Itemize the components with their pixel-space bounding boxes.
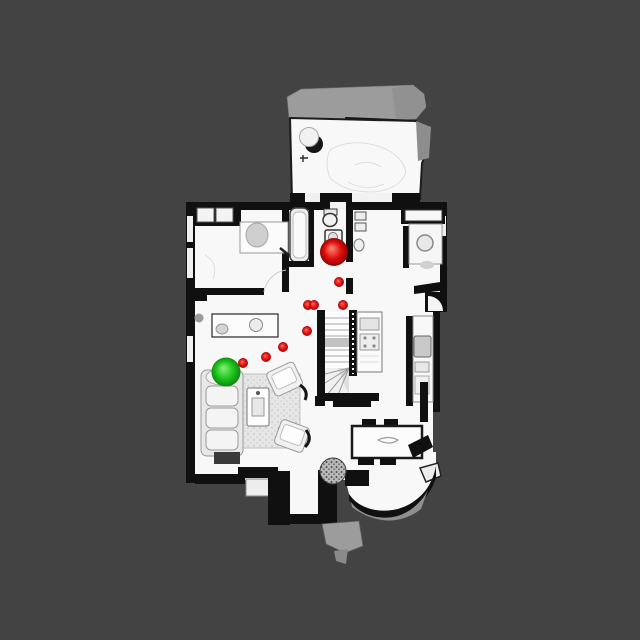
mudroom-floor	[286, 455, 322, 517]
upper-room	[287, 85, 431, 202]
hallway	[354, 212, 366, 251]
plant	[320, 458, 346, 484]
tv-stand	[214, 452, 240, 464]
desk-chair	[246, 223, 268, 247]
waypoint-dot[interactable]	[338, 300, 348, 310]
waypoint-dot[interactable]	[261, 352, 271, 362]
stove	[360, 334, 379, 350]
waypoint-dot[interactable]	[334, 277, 344, 287]
round-table	[300, 128, 319, 147]
landing-step	[325, 338, 349, 347]
stair-rail	[317, 310, 325, 402]
fixture	[355, 223, 366, 231]
start-marker[interactable]	[212, 358, 241, 387]
waypoint-dot[interactable]	[278, 342, 288, 352]
dining-chair	[380, 458, 396, 465]
waypoint-dot[interactable]	[309, 300, 319, 310]
goal-marker[interactable]	[320, 238, 348, 266]
window-bay	[405, 210, 442, 221]
scene-viewport[interactable]	[0, 0, 640, 640]
kitchen-sink	[360, 318, 379, 330]
fixture	[355, 212, 366, 220]
waypoint-dot[interactable]	[238, 358, 248, 368]
waypoint-dot[interactable]	[302, 326, 312, 336]
toilet	[323, 214, 337, 227]
closet-door	[216, 208, 233, 222]
closet-door	[197, 208, 214, 222]
fridge	[414, 336, 431, 357]
fixture	[354, 239, 364, 251]
dining-chair	[358, 458, 374, 465]
